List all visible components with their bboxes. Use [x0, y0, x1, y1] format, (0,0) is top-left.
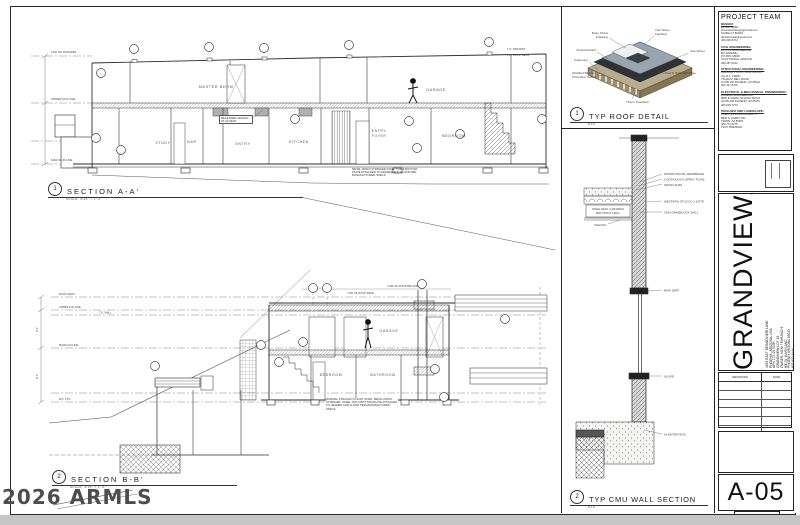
label-parapet-right: T.O. PARAPET — [507, 47, 526, 51]
roof-iso-slab — [588, 42, 692, 98]
cmu-detail-caption: 2 TYP CMU WALL SECTION — [570, 490, 708, 506]
label-roof-beyond: LINE OF ROOF BEYOND — [387, 284, 418, 288]
section-b-dim-line — [38, 295, 44, 404]
label-upper-a: UPPER FLR LINE — [51, 97, 75, 101]
title-block-column: PROJECT TEAM DESIGN: EHSAN AMIRI ehsanam… — [714, 7, 796, 513]
cmu-label-ceiling: CEILING — [594, 223, 607, 227]
detail-divider — [562, 128, 715, 129]
label-main-a: MAIN FLR LINE — [51, 158, 73, 162]
label-upper-b: UPPER FLR LINE — [59, 305, 81, 309]
roof-label-insulation: Therm Insulation — [626, 100, 649, 104]
revision-row — [719, 417, 791, 426]
right-wings-b — [455, 295, 547, 384]
project-owner: OWNER: MANI TEHRANCHI 800 W. MARYLAND PH… — [781, 198, 794, 368]
stamp-text-mark-2 — [779, 163, 780, 179]
cmu-label-deck-2: PER STRUCT ENG. — [596, 211, 621, 215]
room-garage-a: GARAGE — [426, 88, 446, 92]
titleblock-project-box: GRANDVIEW/ 4639 EAST GRANDVIEW LANE PHOE… — [718, 193, 794, 371]
roof-label-base: Peel N Stick 180 Base — [665, 71, 696, 75]
project-address: 4639 EAST GRANDVIEW LANE PHOENIX, ARIZON… — [766, 198, 781, 368]
cmu-detail-drawing: WATER PROOF MEMBRANE CONTINUOUS SPRAY FO… — [564, 130, 714, 485]
cmu-detail-bubble: 2 — [570, 490, 584, 504]
room-master: MASTER BDRM — [199, 85, 234, 89]
label-roof-b: ROOF DECK — [59, 292, 75, 296]
section-a-title: SECTION A-A' — [62, 187, 140, 196]
stair-note-b: NORMAL STRAIGHT FLIGHT STAIR, METAL MONO… — [326, 398, 398, 411]
dim-lower-b: 8'-1" — [35, 373, 39, 379]
upper-walls-a — [130, 55, 511, 103]
design-lines: EHSAN AMIRI ehsanamiridesign@icloud.com … — [721, 26, 789, 42]
sheet: TOP OF PARAPET UPPER FLR LINE MAIN FLR L… — [0, 0, 800, 525]
dim-upper-b: 9'-1" — [35, 326, 39, 332]
project-team-heading: PROJECT TEAM — [721, 14, 789, 21]
room-bedroom-a: BEDROOM — [442, 134, 466, 138]
section-a-dim-line — [42, 54, 48, 166]
watermark: 2026 ARMLS — [2, 485, 153, 509]
section-b-title: SECTION B-B' — [66, 475, 144, 484]
detail-column: Base Sheet Flashing Cap Sheet Flashing C… — [561, 7, 715, 513]
accent-note-a: RECESSED CEILING AT ACCENT — [219, 115, 253, 124]
section-b-datum-lines — [51, 297, 546, 402]
revision-row — [719, 408, 791, 417]
cmu-label-slope: SLOPE — [664, 375, 674, 379]
project-team-civil: CIVIL ENGINEERING: BA CIVIL ENGINEERING … — [721, 45, 789, 65]
section-a-scale: SCALE: 3/16" = 1'-0" — [66, 197, 102, 201]
stair-shaft-a — [332, 111, 350, 164]
exterior-stair-a — [485, 103, 515, 154]
date-label: DATE — [762, 373, 791, 381]
roof-label-fasteners: Fasteners — [574, 58, 588, 62]
revision-row — [719, 400, 791, 409]
section-a-drawing: TOP OF PARAPET UPPER FLR LINE MAIN FLR L… — [31, 38, 555, 251]
roof-detail-bubble: 1 — [570, 107, 584, 121]
room-garage-b: GARAGE — [380, 329, 399, 333]
revisions-header: REVISIONS DATE — [719, 373, 791, 382]
cmu-label-slab: SLAB PER ENG. — [664, 433, 687, 437]
revision-row — [719, 382, 791, 391]
room-entry: ENTRY — [235, 142, 250, 146]
room-foyer-1: ENTRY — [372, 129, 387, 133]
roof-detail-scale: NTS — [588, 122, 595, 126]
section-b-bubble: 2 — [52, 470, 66, 484]
project-team-box: PROJECT TEAM DESIGN: EHSAN AMIRI ehsanam… — [718, 11, 792, 151]
revisions-label: REVISIONS — [719, 373, 762, 381]
main-drawing-area: TOP OF PARAPET UPPER FLR LINE MAIN FLR L… — [11, 7, 561, 513]
stamp-box — [718, 154, 794, 192]
label-bof-b: B.O. FTG — [59, 397, 71, 401]
label-parapet-a: TOP OF PARAPET — [51, 50, 77, 54]
page-bottom-strip — [0, 515, 800, 525]
room-study: STUDY — [155, 141, 170, 145]
cmu-detail-scale: NTS — [588, 505, 595, 509]
roof-detail-drawing: Base Sheet Flashing Cap Sheet Flashing C… — [564, 12, 714, 106]
cmu-detail-title: TYP CMU WALL SECTION — [584, 495, 696, 504]
person-figure-a — [408, 79, 418, 103]
room-kitchen: KITCHEN — [289, 140, 309, 144]
revisions-table: REVISIONS DATE — [718, 372, 792, 428]
electrical-lines: ARDEBILI ENGINEERING 8930 E INDIAN SCHOO… — [721, 94, 789, 107]
room-bathroom-b: BATHROOM — [370, 373, 395, 377]
label-tow-b: T.O. WALL — [99, 311, 112, 315]
stamp-inner-box — [765, 160, 791, 188]
room-bar: BAR — [187, 140, 196, 144]
cmu-label-foam: CONTINUOUS SPRAY FOAM — [664, 178, 705, 182]
roof-label-protectoboard: Protectoboard — [577, 48, 597, 52]
cmu-label-cmu: CMU OMNIBLOCK WALL — [664, 211, 699, 215]
section-b-caption: 2 SECTION B-B' — [52, 470, 237, 486]
cmu-label-stucco: WESTERN STUCCO 1 KOTE — [664, 200, 704, 204]
left-wing-b — [120, 340, 269, 473]
sheet-number: A-05 — [728, 478, 785, 507]
roof-detail-title: TYP ROOF DETAIL — [584, 112, 670, 121]
roof-label-mbp-2: Protection (MBP) — [572, 75, 596, 79]
project-team-structural: STRUCTURAL ENGINEERING: ARIZONA STRUCTUR… — [721, 67, 789, 87]
roof-label-cap-flash-2: Flashing — [655, 32, 667, 36]
footings-a — [88, 168, 548, 173]
cmu-label-shim: WOOD SHIM — [664, 183, 682, 187]
sheet-number-box: A-05 — [718, 474, 794, 511]
civil-lines: BA CIVIL ENGINEERING BO ARDEBILI P.O.BOX… — [721, 49, 789, 65]
section-a-bubble: 1 — [48, 182, 62, 196]
landscape-lines: CREATIVE ENVIRONMENTS 8800 S. HARDY DR. … — [721, 113, 789, 129]
cmu-label-deck-1: STEEL DECK & FRAMING — [592, 207, 624, 211]
label-roof-right: T.O. ROOF DECK — [507, 53, 530, 57]
roof-detail-caption: 1 TYP ROOF DETAIL — [570, 107, 708, 123]
label-main-b: MAIN FLR LINE — [59, 343, 78, 347]
project-name: GRANDVIEW/ — [721, 198, 765, 370]
roof-label-cap-sheet: Cap Sheet — [690, 49, 705, 53]
project-team-design: DESIGN: EHSAN AMIRI ehsanamiridesign@icl… — [721, 22, 789, 42]
room-foyer-2: FOYER — [372, 134, 387, 138]
cmu-label-rain: RAIN DRIP — [664, 289, 679, 293]
room-bedroom-b: BEDROOM — [320, 373, 343, 377]
empty-stamp-box — [718, 431, 794, 473]
stamp-text-mark — [771, 163, 772, 179]
structural-lines: ARIZONA STRUCTURAL GROUP JULIA L. KIZER … — [721, 71, 789, 87]
cmu-label-wpm: WATER PROOF MEMBRANE — [664, 172, 704, 176]
roof-label-base-flash-2: Flashing — [596, 35, 608, 39]
stair-note-a: METAL MONO STRINGER STAIR, TOP & BOTTOM … — [352, 168, 420, 178]
section-a-caption: 1 SECTION A-A' — [48, 182, 303, 198]
project-team-landscape: POOL/SPA AND LANDSCAPE: CREATIVE ENVIRON… — [721, 109, 789, 129]
revision-row — [719, 391, 791, 400]
project-team-electrical: ELECTRICAL & MECHANICAL ENGINEERING: ARD… — [721, 90, 789, 107]
label-top-deck: TOP OF ROOF DECK — [348, 291, 375, 295]
